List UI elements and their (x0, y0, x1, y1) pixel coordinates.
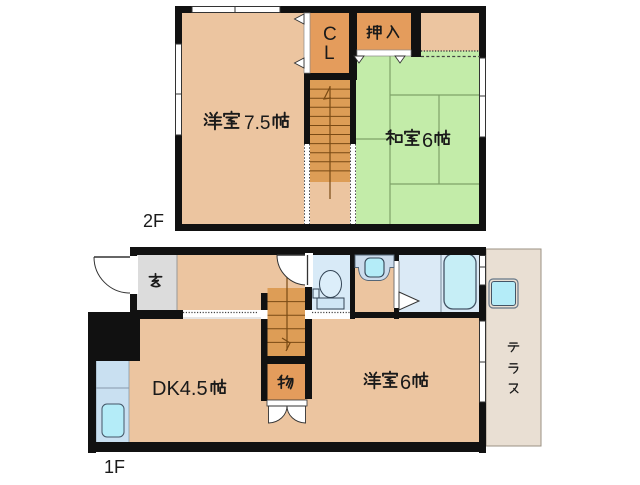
svg-text:C: C (323, 24, 337, 45)
svg-text:6: 6 (422, 130, 433, 152)
svg-text:7.5: 7.5 (244, 113, 270, 134)
svg-text:1F: 1F (104, 457, 125, 477)
svg-text:6: 6 (400, 372, 411, 394)
svg-text:DK4.5: DK4.5 (152, 378, 208, 400)
svg-text:2F: 2F (143, 211, 164, 231)
svg-text:L: L (324, 43, 335, 64)
